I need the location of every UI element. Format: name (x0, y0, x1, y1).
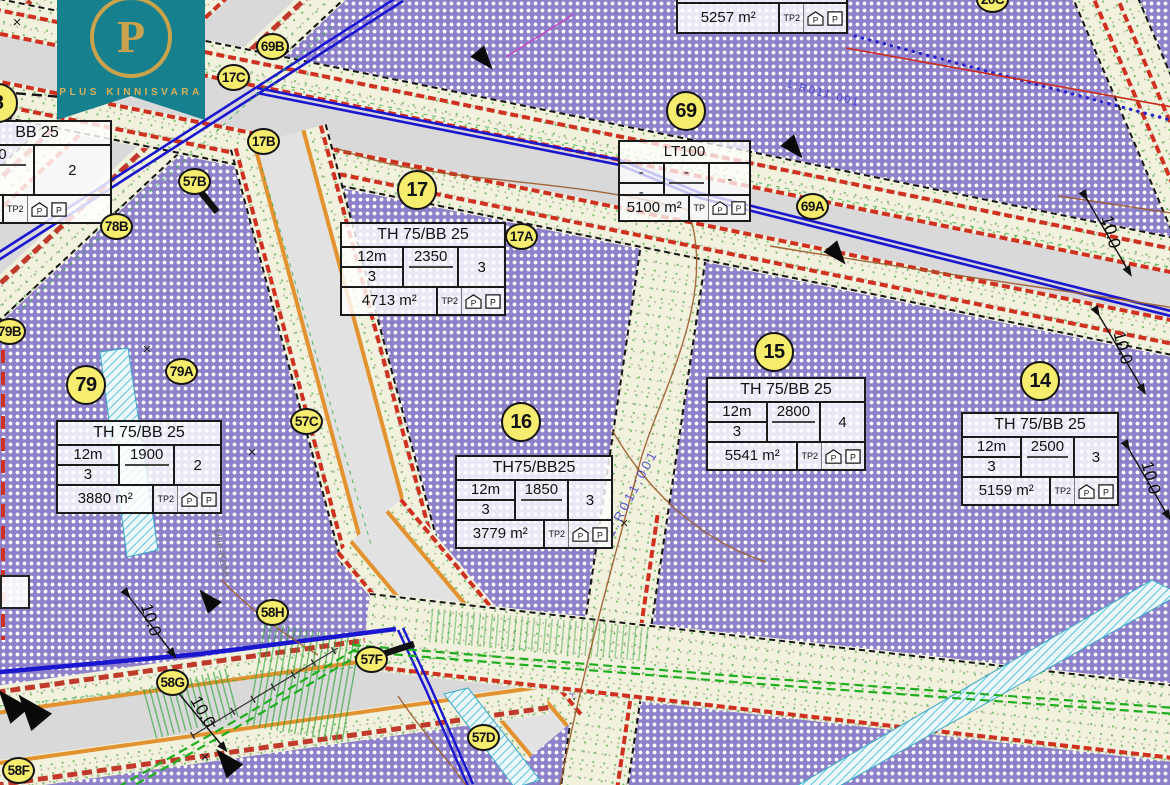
parking-lot-icon: P (827, 11, 843, 26)
floors: 3 (708, 423, 766, 441)
tp-tag: TP2 (798, 443, 822, 469)
floors: 3 (342, 268, 402, 286)
table-fragment (0, 575, 30, 609)
svg-text:P: P (206, 495, 212, 505)
svg-text:P: P (831, 453, 837, 463)
plot-marker-57B: 57B (178, 168, 211, 195)
plot-area: 5100 m² (620, 196, 690, 220)
parking-house-icon: P (31, 202, 48, 217)
svg-text:P: P (56, 205, 62, 215)
plot-marker-58H: 58H (256, 599, 289, 626)
svg-text:P: P (832, 14, 838, 24)
parking-house-icon: P (825, 449, 842, 464)
tp-tag: TP2 (154, 486, 178, 512)
svg-text:P: P (471, 298, 477, 308)
plot-marker-57F: 57F (355, 646, 388, 673)
plot-area: 3880 m² (58, 486, 154, 512)
svg-text:P: P (1084, 488, 1090, 498)
tp-tag: TP2 (438, 288, 462, 314)
plot-marker-17B: 17B (247, 128, 280, 155)
hedge-band (247, 622, 364, 743)
plot-marker-16: 16 (501, 402, 541, 442)
svg-text:P: P (490, 297, 496, 307)
zone-code: LT100 (620, 142, 749, 164)
svg-text:P: P (717, 205, 722, 214)
parking-lot-icon: P (485, 294, 501, 309)
tp-tag: TP2 (1051, 478, 1075, 504)
plot-marker-57D: 57D (467, 724, 500, 751)
plot-area: 5257 m² (678, 4, 780, 32)
svg-text:P: P (813, 15, 819, 25)
plot-marker-17C: 17C (217, 64, 250, 91)
max-height: 12m (457, 481, 514, 501)
max-height: 12m (708, 403, 766, 423)
units: 2 (35, 146, 110, 194)
svg-text:P: P (578, 531, 584, 541)
max-height: 12m (342, 248, 402, 268)
svg-text:P: P (736, 205, 742, 214)
parking-lot-icon: P (201, 492, 217, 507)
units: 3 (1075, 438, 1117, 476)
svg-text:P: P (850, 452, 856, 462)
plot-marker-69: 69 (666, 91, 706, 131)
units: 2 (175, 446, 220, 484)
tp-tag: TP2 (545, 521, 569, 547)
plot-marker-78B: 78B (100, 213, 133, 240)
zone-code: TH 75/BB 25 (963, 414, 1117, 438)
plot-area: 4713 m² (342, 288, 438, 314)
parking-house-icon: P (1078, 484, 1095, 499)
plot-marker-17A: 17A (505, 223, 538, 250)
parking-lot-icon: P (845, 449, 861, 464)
plot-table-lt100: LT100 -- - - 5100 m² TP P P (618, 140, 751, 222)
plot-area: 5541 m² (708, 443, 798, 469)
max-height: 12m (58, 446, 118, 466)
plot-marker-14: 14 (1020, 361, 1060, 401)
plot-marker-69B: 69B (256, 33, 289, 60)
zone-code: TH 75/BB 25 (342, 224, 504, 248)
detail-plan-map: ×× ××× 11:R011:001 1:R011:001 Uue-Kose 1… (0, 0, 1170, 785)
build-area: 1900 (125, 446, 169, 466)
plot-table-17: TH 75/BB 25 12m3 2350 3 4713 m² TP2 P P (340, 222, 506, 316)
parking-lot-icon: P (592, 527, 608, 542)
parking-house-icon: P (465, 294, 482, 309)
svg-text:P: P (36, 206, 42, 216)
parking-lot-icon: P (51, 202, 67, 217)
tp-tag: TP (690, 196, 709, 220)
zone-code: TH 75/BB 25 (58, 422, 220, 446)
parking-lot-icon: P (731, 201, 746, 215)
plot-marker-57C: 57C (290, 408, 323, 435)
svg-text:P: P (1103, 487, 1109, 497)
units: 3 (569, 481, 611, 519)
build-area: 2500 (1027, 438, 1069, 458)
plot-area: 3779 m² (457, 521, 545, 547)
parking-house-icon: P (181, 492, 198, 507)
svg-text:P: P (187, 496, 193, 506)
floors: 3 (963, 458, 1020, 476)
plot-marker-79: 79 (66, 365, 106, 405)
zone-code: BB 25 (0, 122, 110, 146)
build-area: 2350 (409, 248, 453, 268)
svg-text:P: P (597, 530, 603, 540)
logo-monogram: P (117, 14, 145, 60)
plot-marker-79A: 79A (165, 358, 198, 385)
floors: 3 (457, 501, 514, 519)
plot-table-15: TH 75/BB 25 12m3 2800 4 5541 m² TP2 P P (706, 377, 866, 471)
value-dash: - (669, 164, 705, 184)
value-dash: - (710, 164, 749, 194)
build-area: 1850 (521, 481, 563, 501)
plot-marker-58G: 58G (156, 669, 189, 696)
plot-table-left-partial: BB 25 00 2 TP2 P P (0, 120, 112, 224)
plot-area: 5159 m² (963, 478, 1051, 504)
units: 3 (459, 248, 504, 286)
zone-code: TH75/BB25 (457, 457, 611, 481)
logo-ring: P (90, 0, 172, 78)
plot-table-14: TH 75/BB 25 12m3 2500 3 5159 m² TP2 P P (961, 412, 1119, 506)
plot-table-79: TH 75/BB 25 12m3 1900 2 3880 m² TP2 P P (56, 420, 222, 514)
plot-table-top-partial: 5257 m² TP2 P P (676, 0, 848, 34)
build-area: 2800 (772, 403, 814, 423)
plot-marker-69A: 69A (796, 193, 829, 220)
build-area: 00 (0, 146, 26, 166)
zone-code: TH 75/BB 25 (708, 379, 864, 403)
value-dash: - (620, 164, 663, 184)
plot-marker-17: 17 (397, 170, 437, 210)
parking-house-icon: P (712, 201, 728, 215)
tp-tag: TP2 (780, 4, 804, 32)
plot-marker-58F: 58F (2, 757, 35, 784)
floors: 3 (58, 466, 118, 484)
tp-tag: TP2 (2, 196, 28, 222)
units: 4 (821, 403, 864, 441)
plot-marker-15: 15 (754, 332, 794, 372)
plot-table-16: TH75/BB25 12m3 1850 3 3779 m² TP2 P P (455, 455, 613, 549)
parking-house-icon: P (572, 527, 589, 542)
parking-house-icon: P (807, 11, 824, 26)
max-height: 12m (963, 438, 1020, 458)
parking-lot-icon: P (1098, 484, 1114, 499)
